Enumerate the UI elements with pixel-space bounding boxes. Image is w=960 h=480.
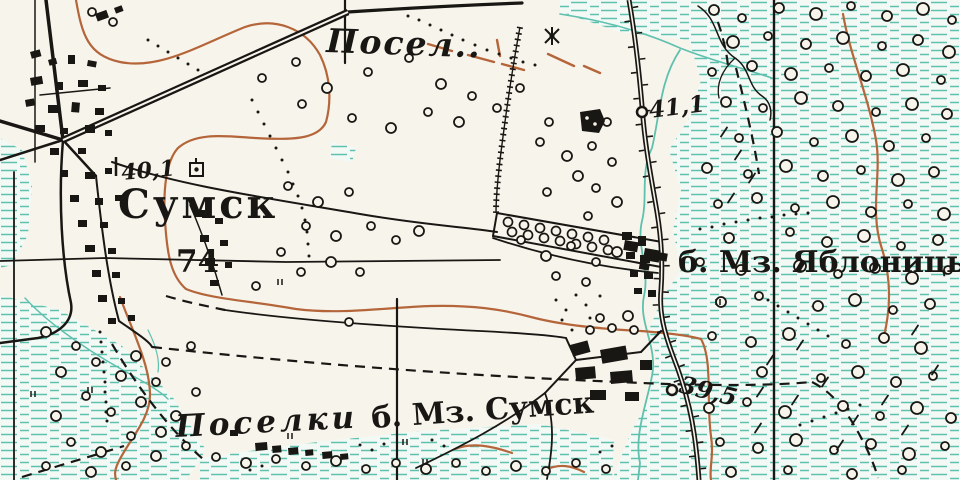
label-elevation-74: 74 xyxy=(176,244,219,280)
label-settlement-top: Посел.. xyxy=(325,21,483,65)
benchmark-circle xyxy=(667,385,677,395)
map-canvas: Посел.. 40,1 Сумск 74 41,1 б. Мз. Яблони… xyxy=(0,0,960,480)
map-viewport: Посел.. 40,1 Сумск 74 41,1 б. Мз. Яблони… xyxy=(0,0,960,480)
label-village-sumsk: Сумск xyxy=(118,181,278,228)
label-estate-yablonitsy: б. Мз. Яблоницы xyxy=(678,245,960,280)
benchmark-circle xyxy=(637,107,647,117)
